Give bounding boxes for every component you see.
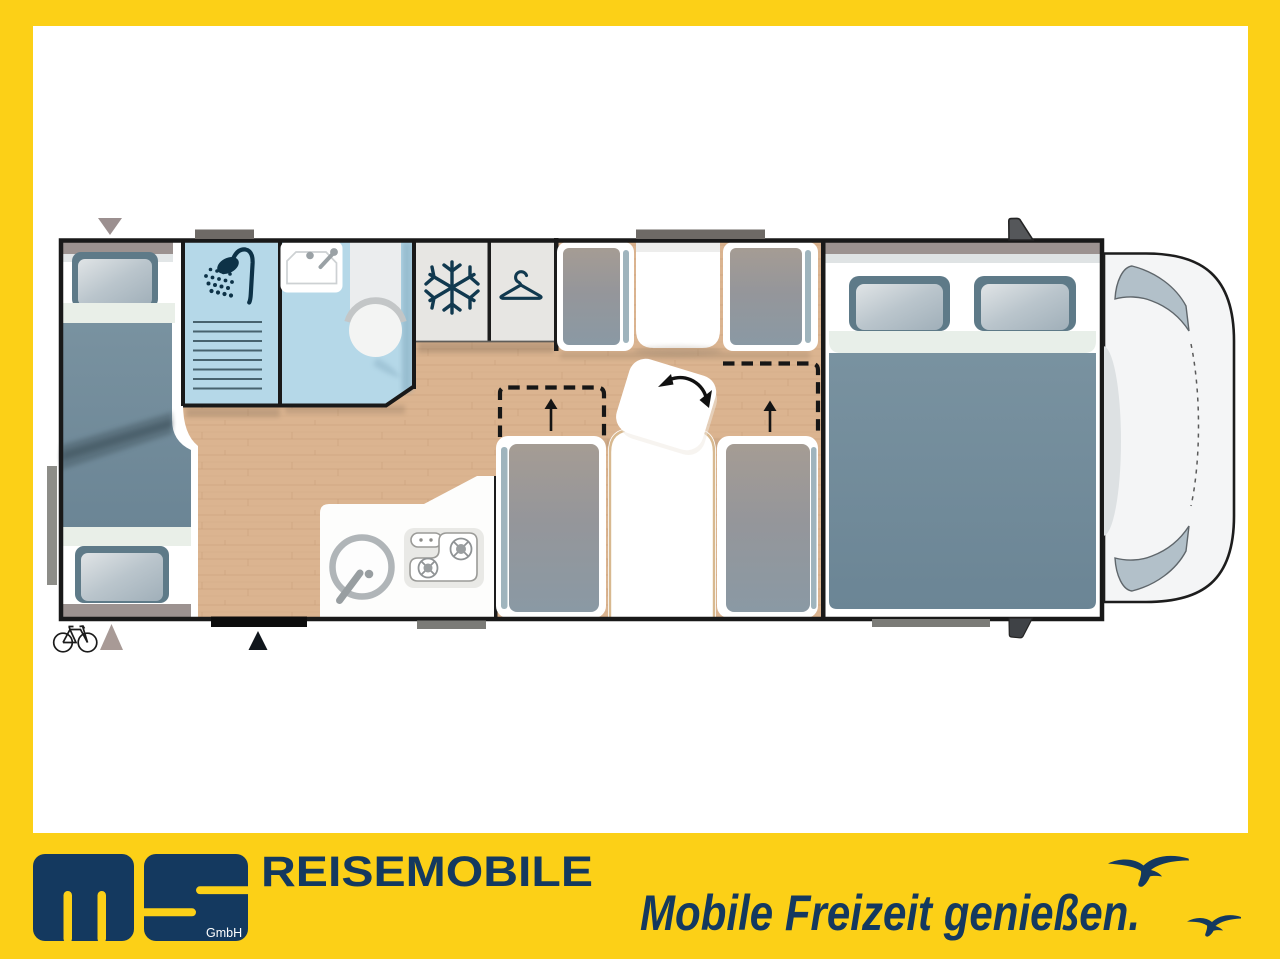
svg-text:REISEMOBILE: REISEMOBILE	[261, 848, 593, 896]
svg-text:Mobile Freizeit genießen.: Mobile Freizeit genießen.	[640, 885, 1140, 941]
svg-text:GmbH: GmbH	[206, 926, 242, 940]
